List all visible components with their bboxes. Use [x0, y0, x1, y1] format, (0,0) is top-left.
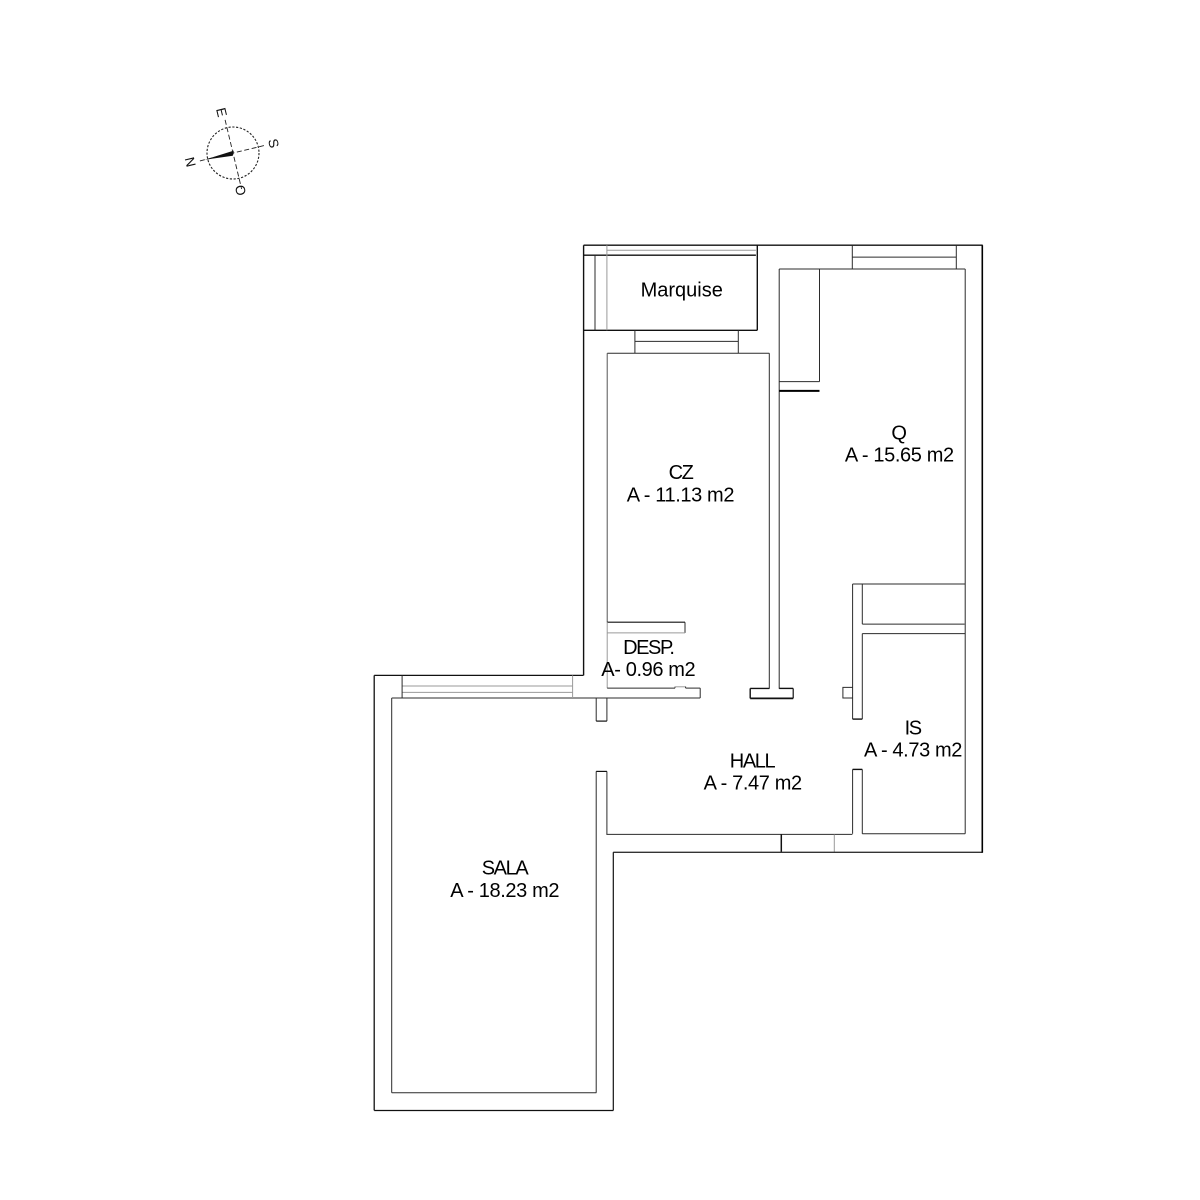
svg-text:SALA: SALA [482, 858, 530, 880]
svg-text:Q: Q [891, 422, 906, 444]
svg-text:A - 15.65 m2: A - 15.65 m2 [845, 445, 954, 467]
svg-text:DESP.: DESP. [623, 637, 673, 659]
svg-text:HALL: HALL [730, 750, 776, 772]
svg-text:A - 11.13 m2: A - 11.13 m2 [627, 484, 735, 506]
svg-text:A - 18.23 m2: A - 18.23 m2 [450, 880, 559, 902]
svg-text:Marquise: Marquise [641, 279, 723, 301]
svg-text:A - 4.73 m2: A - 4.73 m2 [864, 740, 962, 762]
svg-text:A- 0.96 m2: A- 0.96 m2 [601, 659, 695, 681]
svg-text:IS: IS [905, 717, 922, 739]
svg-text:A - 7.47 m2: A - 7.47 m2 [704, 773, 802, 795]
svg-text:CZ: CZ [669, 462, 694, 484]
